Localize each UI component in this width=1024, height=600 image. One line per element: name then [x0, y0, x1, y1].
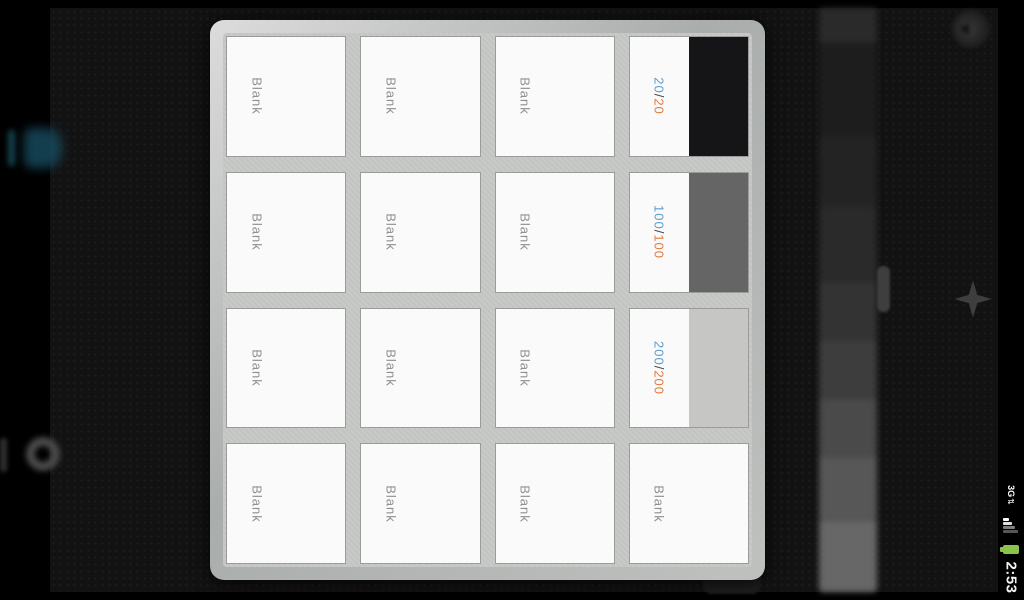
- page-card-label: Blank: [249, 485, 264, 523]
- page-card-blank[interactable]: Blank: [226, 308, 346, 429]
- signal-strength-icon: [998, 512, 1024, 538]
- speaker-icon: [24, 128, 62, 168]
- page-card-blank[interactable]: Blank: [629, 443, 749, 564]
- page-template-dialog: BlankBlankBlank20/20BlankBlankBlank100/1…: [210, 20, 765, 580]
- page-card-label: Blank: [249, 349, 264, 387]
- data-traffic-arrows-icon: ⇅: [1007, 498, 1016, 505]
- status-clock: 2:53: [998, 558, 1024, 596]
- page-card-label: Blank: [518, 78, 533, 116]
- page-card-label: 100/100: [652, 205, 667, 259]
- page-card-blank[interactable]: Blank: [226, 36, 346, 157]
- page-card-blank[interactable]: Blank: [360, 308, 480, 429]
- page-card-label: Blank: [383, 213, 398, 251]
- page-card-blank[interactable]: Blank: [495, 36, 615, 157]
- network-label: 3G: [1006, 485, 1016, 497]
- page-fill-swatch: [689, 309, 748, 428]
- page-card-label: Blank: [383, 485, 398, 523]
- back-circle-icon: [952, 10, 990, 48]
- page-card-contrast[interactable]: 100/100: [629, 172, 749, 293]
- page-card-label: Blank: [518, 485, 533, 523]
- page-card-label: Blank: [652, 485, 667, 523]
- left-edge-bar: [0, 438, 7, 472]
- page-card-blank[interactable]: Blank: [360, 172, 480, 293]
- page-card-label: Blank: [383, 349, 398, 387]
- page-fill-swatch: [689, 37, 748, 156]
- clock-text: 2:53: [1003, 561, 1020, 593]
- page-card-label: Blank: [249, 78, 264, 116]
- page-card-blank[interactable]: Blank: [495, 443, 615, 564]
- ring-icon: [26, 437, 60, 471]
- page-card-label: Blank: [383, 78, 398, 116]
- page-card-blank[interactable]: Blank: [495, 308, 615, 429]
- page-card-blank[interactable]: Blank: [226, 443, 346, 564]
- page-card-label: 200/200: [652, 341, 667, 395]
- page-card-label: Blank: [249, 213, 264, 251]
- page-grid: BlankBlankBlank20/20BlankBlankBlank100/1…: [223, 33, 752, 567]
- status-bar: 3G ⇅ 2:53: [998, 0, 1024, 600]
- left-edge-bar: [8, 130, 15, 166]
- page-card-contrast[interactable]: 20/20: [629, 36, 749, 157]
- page-card-label: Blank: [518, 213, 533, 251]
- page-fill-swatch: [689, 173, 748, 292]
- page-card-contrast[interactable]: 200/200: [629, 308, 749, 429]
- battery-icon: [998, 540, 1024, 558]
- page-card-label: Blank: [518, 349, 533, 387]
- grayscale-wedge-strip: [819, 8, 877, 592]
- page-card-blank[interactable]: Blank: [226, 172, 346, 293]
- scrollbar-handle[interactable]: [877, 266, 890, 312]
- page-card-blank[interactable]: Blank: [360, 443, 480, 564]
- page-card-blank[interactable]: Blank: [495, 172, 615, 293]
- network-type-icon: 3G ⇅: [998, 482, 1024, 508]
- page-card-label: 20/20: [652, 78, 667, 116]
- page-card-blank[interactable]: Blank: [360, 36, 480, 157]
